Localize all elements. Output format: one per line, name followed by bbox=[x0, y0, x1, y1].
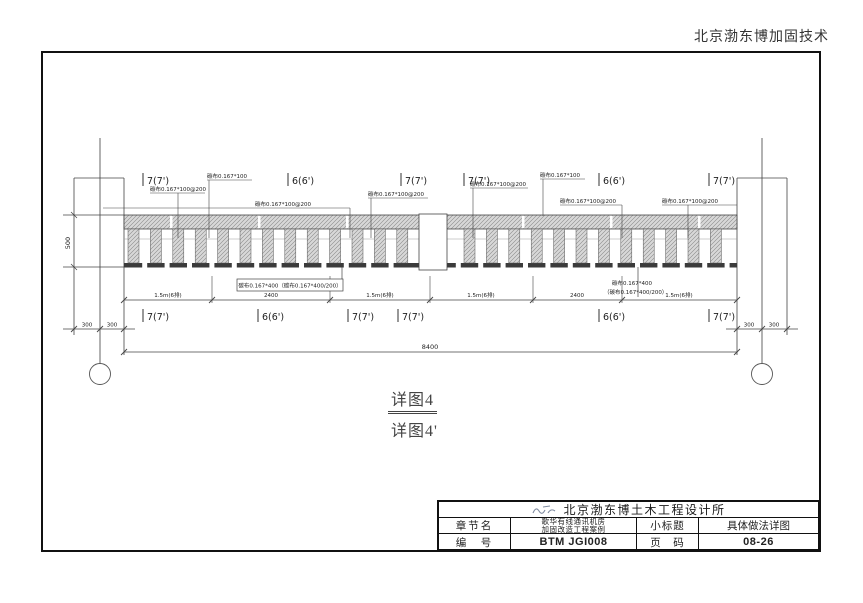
chord-gap bbox=[456, 263, 461, 268]
chord-gap bbox=[725, 263, 730, 268]
cfrp-leader-note: 碳布0.167*100@200 bbox=[662, 197, 718, 205]
cfrp-leader-note: 碳布0.167*100 bbox=[540, 171, 580, 179]
edge-dim-text: 300 bbox=[769, 323, 780, 329]
chord-gap bbox=[299, 263, 304, 268]
page-value: 08-26 bbox=[699, 534, 818, 550]
dim-total-text: 8400 bbox=[422, 343, 439, 351]
slab-segment-gap bbox=[522, 216, 525, 228]
slab-segment-gap bbox=[346, 216, 349, 228]
design-institute-logo bbox=[531, 504, 557, 516]
hatched-rib bbox=[307, 229, 318, 263]
cfrp-leader-note: 碳布0.167*100@200 bbox=[255, 200, 311, 208]
segment-dim-text: 2400 bbox=[570, 293, 584, 299]
hatched-rib bbox=[666, 229, 677, 263]
cfrp-leader-note: 碳布0.167*100@200 bbox=[368, 190, 424, 198]
slab-segment-gap bbox=[698, 216, 701, 228]
section-value: 歌华有线通讯机房 加固改造工程案例 bbox=[511, 518, 637, 533]
segment-dim-text: 2400 bbox=[264, 293, 278, 299]
cfrp-note-side-line2: （碳布0.167*400/200） bbox=[604, 288, 667, 296]
segment-dim-text: 1.5m(6排) bbox=[366, 291, 393, 299]
drawing-sheet: 北京渤东博加固技术 bbox=[0, 0, 863, 603]
hatched-rib bbox=[330, 229, 341, 263]
cfrp-leader-note: 碳布0.167*100 bbox=[207, 172, 247, 180]
hatched-rib bbox=[150, 229, 161, 263]
institute-name: 北京渤东博土木工程设计所 bbox=[563, 501, 725, 518]
cfrp-note-boxed-text: 碳布0.167*400（碳布0.167*400/200） bbox=[238, 282, 341, 290]
chord-gap bbox=[232, 263, 237, 268]
segment-dim-text: 1.5m(6排) bbox=[467, 291, 494, 299]
axis-label: 6(6') bbox=[262, 312, 284, 323]
hatched-rib bbox=[240, 229, 251, 263]
chord-gap bbox=[187, 263, 192, 268]
grid-bubble-right bbox=[752, 364, 773, 385]
dim-depth-text: 500 bbox=[64, 237, 72, 249]
subtitle-value: 具体做法详图 bbox=[699, 518, 818, 533]
hatched-rib bbox=[262, 229, 273, 263]
hatched-rib bbox=[128, 229, 139, 263]
chord-gap bbox=[501, 263, 506, 268]
chord-gap bbox=[254, 263, 259, 268]
slab-segment-gap bbox=[170, 216, 173, 228]
chord-gap bbox=[613, 263, 618, 268]
hatched-rib bbox=[621, 229, 632, 263]
depth-dimension bbox=[63, 212, 124, 270]
axis-label: 6(6') bbox=[603, 176, 625, 187]
slab-segment-gap bbox=[610, 216, 613, 228]
chord-gap bbox=[165, 263, 170, 268]
title-block: 北京渤东博土木工程设计所 章节名 歌华有线通讯机房 加固改造工程案例 小标题 具… bbox=[437, 500, 820, 551]
hatched-rib bbox=[688, 229, 699, 263]
detail-caption-sub: 详图4' bbox=[388, 417, 438, 441]
axis-label: 6(6') bbox=[292, 176, 314, 187]
hatched-rib bbox=[464, 229, 475, 263]
hatched-rib bbox=[374, 229, 385, 263]
chord-gap bbox=[545, 263, 550, 268]
title-block-header: 北京渤东博土木工程设计所 bbox=[439, 502, 818, 518]
axis-label: 7(7') bbox=[713, 176, 735, 187]
page-label: 页 码 bbox=[637, 534, 699, 550]
hatched-rib bbox=[218, 229, 229, 263]
hatched-rib bbox=[195, 229, 206, 263]
axis-label: 6(6') bbox=[603, 312, 625, 323]
hatched-rib bbox=[531, 229, 542, 263]
edge-dim-text: 300 bbox=[82, 323, 93, 329]
cfrp-leader-note: 碳布0.167*100@200 bbox=[470, 180, 526, 188]
section-value-line2: 加固改造工程案例 bbox=[542, 526, 606, 534]
chord-gap bbox=[321, 263, 326, 268]
hatched-rib bbox=[509, 229, 520, 263]
number-label: 编 号 bbox=[439, 534, 511, 550]
cfrp-leader-note: 碳布0.167*100@200 bbox=[560, 197, 616, 205]
chord-gap bbox=[568, 263, 573, 268]
subtitle-label: 小标题 bbox=[637, 518, 699, 533]
grid-bubble-left bbox=[90, 364, 111, 385]
chord-gap bbox=[478, 263, 483, 268]
chord-gap bbox=[702, 263, 707, 268]
hatched-rib bbox=[710, 229, 721, 263]
title-block-row-number: 编 号 BTM JGI008 页 码 08-26 bbox=[439, 534, 818, 550]
axis-label: 7(7') bbox=[713, 312, 735, 323]
chord-gap bbox=[344, 263, 349, 268]
section-label: 章节名 bbox=[439, 518, 511, 533]
axis-label: 7(7') bbox=[402, 312, 424, 323]
hatched-rib bbox=[397, 229, 408, 263]
detail-caption-main: 详图4 bbox=[388, 386, 437, 414]
chord-gap bbox=[523, 263, 528, 268]
cfrp-note-side-line1: 碳布0.167*400 bbox=[612, 279, 652, 287]
hatched-rib bbox=[576, 229, 587, 263]
chord-gap bbox=[209, 263, 214, 268]
chord-gap bbox=[142, 263, 147, 268]
edge-dim-text: 300 bbox=[744, 323, 755, 329]
axis-label: 7(7') bbox=[352, 312, 374, 323]
hatched-rib bbox=[285, 229, 296, 263]
axis-label: 7(7') bbox=[147, 176, 169, 187]
chord-gap bbox=[590, 263, 595, 268]
chord-gap bbox=[680, 263, 685, 268]
hatched-rib bbox=[554, 229, 565, 263]
detail-caption: 详图4 详图4' bbox=[388, 386, 438, 441]
hatched-rib bbox=[598, 229, 609, 263]
chord-gap bbox=[657, 263, 662, 268]
chord-gap bbox=[366, 263, 371, 268]
chord-gap bbox=[389, 263, 394, 268]
number-value: BTM JGI008 bbox=[511, 534, 637, 550]
chord-gap bbox=[635, 263, 640, 268]
edge-dim-text: 300 bbox=[107, 323, 118, 329]
hatched-rib bbox=[486, 229, 497, 263]
sheet-border bbox=[42, 52, 820, 551]
slab-opening bbox=[419, 214, 447, 270]
segment-dim-text: 1.5m(6排) bbox=[154, 291, 181, 299]
chord-gap bbox=[277, 263, 282, 268]
hatched-rib bbox=[352, 229, 363, 263]
axis-label: 7(7') bbox=[405, 176, 427, 187]
segment-dim-text: 1.5m(6排) bbox=[665, 291, 692, 299]
slab-segment-gap bbox=[258, 216, 261, 228]
hatched-rib bbox=[643, 229, 654, 263]
axis-label: 7(7') bbox=[147, 312, 169, 323]
cfrp-leader-note: 碳布0.167*100@200 bbox=[150, 185, 206, 193]
title-block-row-section: 章节名 歌华有线通讯机房 加固改造工程案例 小标题 具体做法详图 bbox=[439, 518, 818, 534]
